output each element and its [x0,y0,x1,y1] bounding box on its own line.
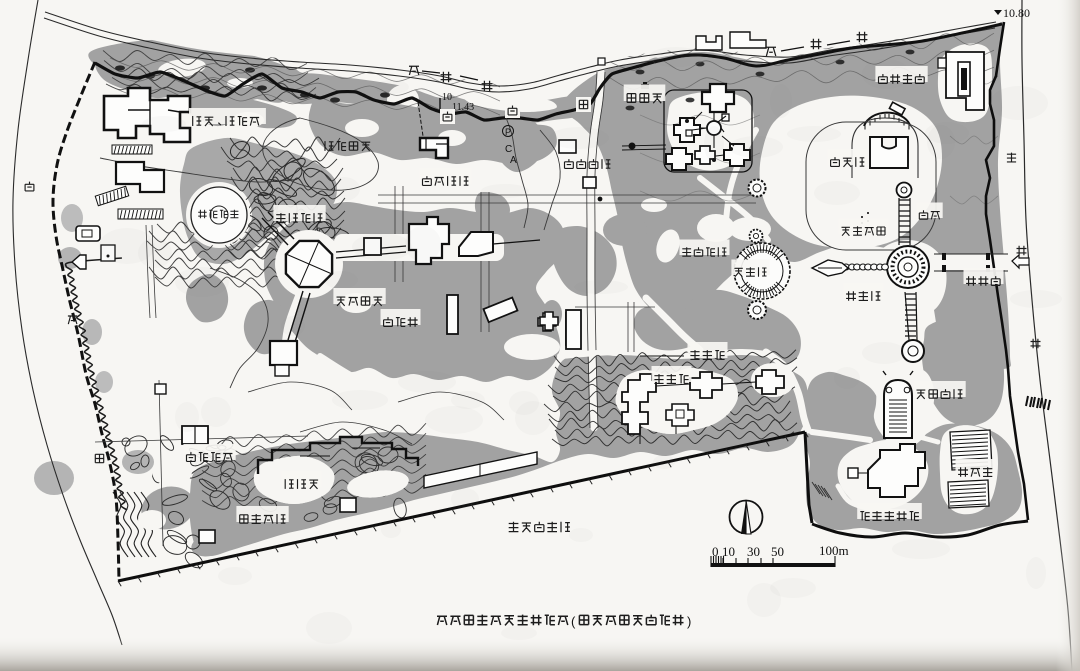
svg-text:A: A [510,155,517,166]
svg-text:10: 10 [722,544,735,559]
svg-text:C: C [505,144,512,155]
svg-text:10: 10 [442,92,452,103]
svg-text:100m: 100m [819,543,849,558]
svg-text:10.80: 10.80 [1003,6,1030,20]
svg-text:0: 0 [712,544,719,559]
svg-text:11.43: 11.43 [452,102,474,113]
svg-text:P: P [505,127,511,137]
svg-text:): ) [687,614,691,629]
svg-text:50: 50 [771,544,784,559]
svg-text:30: 30 [747,544,760,559]
svg-text:(: ( [571,614,576,629]
